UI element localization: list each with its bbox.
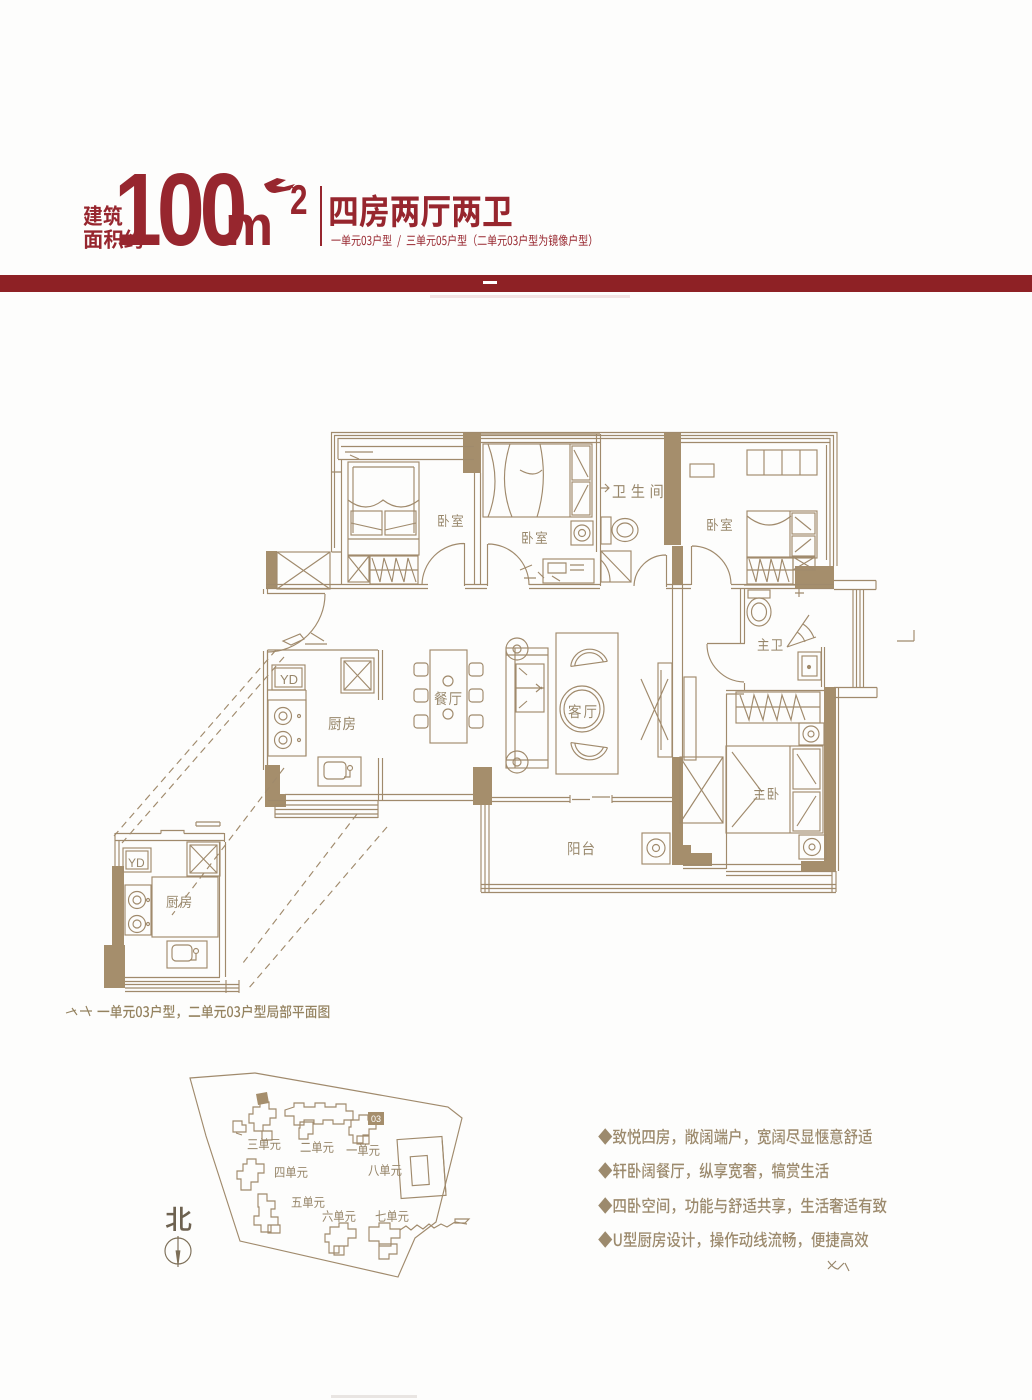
svg-text:03: 03 bbox=[371, 1114, 381, 1124]
svg-text:YD: YD bbox=[128, 856, 145, 870]
svg-text:YD: YD bbox=[280, 672, 298, 687]
